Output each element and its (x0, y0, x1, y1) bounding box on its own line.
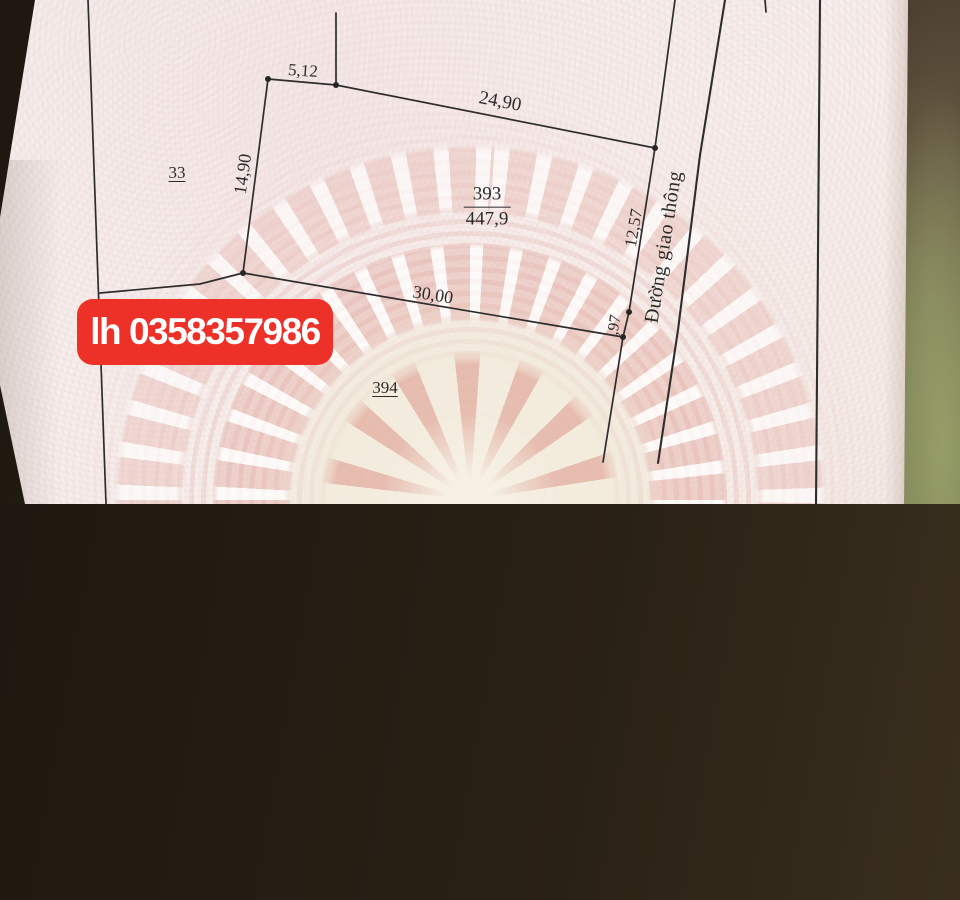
photo-of-cadastral-map: 33 5,12 24,90 14,90 12,57 ,97 30,00 393 … (0, 0, 960, 504)
lower-left-boundary-line (100, 273, 243, 293)
vertex-dot (265, 76, 271, 82)
dimension-label-5-12: 5,12 (287, 60, 318, 82)
top-right-tick (765, 0, 766, 12)
dimension-label-0-97: ,97 (604, 314, 625, 337)
contact-phone-text: lh 0358357986 (90, 311, 319, 353)
contact-phone-badge: lh 0358357986 (77, 299, 333, 365)
parcel-number: 393 (464, 184, 511, 208)
vertex-dot (240, 270, 246, 276)
vertex-dot (652, 145, 658, 151)
vertex-dot (333, 82, 339, 88)
parcel-393-number-area: 393 447,9 (464, 184, 511, 231)
parcel-label-394: 394 (372, 378, 398, 398)
far-right-boundary-line (816, 0, 820, 504)
vertex-dot (626, 309, 632, 315)
parcel-boundary-drawing (0, 0, 960, 504)
parcel-label-33: 33 (169, 163, 186, 183)
left-boundary-line (88, 0, 106, 504)
parcel-area: 447,9 (464, 208, 511, 231)
